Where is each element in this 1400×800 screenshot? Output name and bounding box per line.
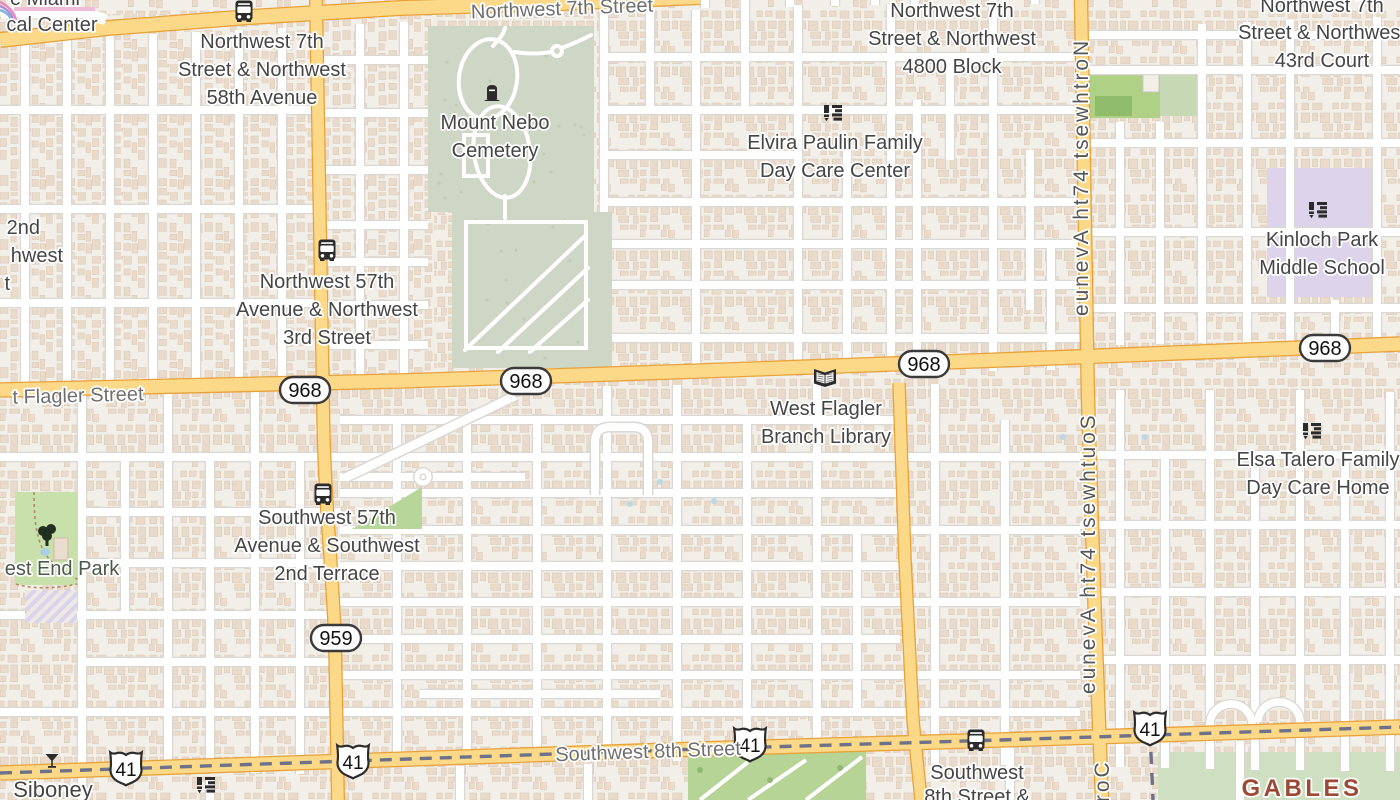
svg-text:Northwest 57th: Northwest 57th bbox=[260, 271, 395, 293]
svg-text:Cemetery: Cemetery bbox=[452, 140, 539, 162]
svg-text:8th Street &: 8th Street & bbox=[924, 786, 1030, 800]
svg-text:Mount Nebo: Mount Nebo bbox=[441, 112, 550, 134]
svg-text:cal Center: cal Center bbox=[6, 14, 97, 36]
svg-text:2nd Terrace: 2nd Terrace bbox=[274, 563, 379, 585]
svg-text:Southwest: Southwest bbox=[930, 762, 1024, 784]
svg-text:58th Avenue: 58th Avenue bbox=[207, 87, 318, 109]
svg-text:41: 41 bbox=[1139, 720, 1160, 741]
svg-text:Elsa Talero Family: Elsa Talero Family bbox=[1236, 449, 1399, 471]
svg-text:Kinloch Park: Kinloch Park bbox=[1266, 229, 1379, 251]
svg-text:959: 959 bbox=[319, 628, 352, 650]
svg-text:41: 41 bbox=[342, 753, 363, 774]
svg-text:eunevA ht74 tsewhtuoS: eunevA ht74 tsewhtuoS bbox=[1077, 412, 1100, 694]
svg-text:Street & Northwest: Street & Northwest bbox=[868, 28, 1036, 50]
svg-text:Northwest 7th: Northwest 7th bbox=[1260, 0, 1383, 17]
svg-text:41: 41 bbox=[739, 736, 760, 757]
svg-text:Street & Northwest: Street & Northwest bbox=[178, 59, 346, 81]
svg-text:Siboney: Siboney bbox=[13, 777, 93, 800]
svg-text:Branch Library: Branch Library bbox=[761, 426, 891, 448]
svg-text:3rd Street: 3rd Street bbox=[283, 327, 371, 349]
svg-text:2nd: 2nd bbox=[7, 217, 40, 239]
svg-text:Day Care Home: Day Care Home bbox=[1246, 477, 1389, 499]
svg-text:Northwest 7th: Northwest 7th bbox=[890, 0, 1013, 22]
svg-text:Avenue & Southwest: Avenue & Southwest bbox=[234, 535, 420, 557]
svg-text:roC: roC bbox=[1091, 759, 1114, 800]
svg-text:e Miami: e Miami bbox=[10, 0, 80, 10]
svg-text:968: 968 bbox=[288, 380, 321, 402]
svg-text:est End Park: est End Park bbox=[5, 558, 121, 580]
svg-text:eunevA ht74 tsewhtroN: eunevA ht74 tsewhtroN bbox=[1070, 38, 1093, 316]
svg-text:GABLES: GABLES bbox=[1241, 775, 1362, 800]
svg-text:West Flagler: West Flagler bbox=[770, 398, 882, 420]
svg-text:t: t bbox=[4, 273, 10, 295]
svg-text:hwest: hwest bbox=[11, 245, 64, 267]
svg-text:Avenue & Northwest: Avenue & Northwest bbox=[236, 299, 418, 321]
svg-text:Southwest 57th: Southwest 57th bbox=[258, 507, 396, 529]
svg-text:968: 968 bbox=[1308, 338, 1341, 360]
svg-text:Elvira Paulin Family: Elvira Paulin Family bbox=[747, 132, 923, 154]
svg-text:4800 Block: 4800 Block bbox=[903, 56, 1003, 78]
svg-text:Street & Northwest: Street & Northwest bbox=[1238, 22, 1400, 44]
svg-text:Middle School: Middle School bbox=[1259, 257, 1385, 279]
svg-text:t Flagler Street: t Flagler Street bbox=[12, 383, 144, 408]
svg-text:968: 968 bbox=[509, 371, 542, 393]
svg-text:Northwest 7th: Northwest 7th bbox=[200, 31, 323, 53]
svg-text:Day Care Center: Day Care Center bbox=[760, 160, 910, 182]
svg-text:41: 41 bbox=[115, 760, 136, 781]
svg-text:968: 968 bbox=[907, 354, 940, 376]
svg-text:43rd Court: 43rd Court bbox=[1275, 50, 1370, 72]
